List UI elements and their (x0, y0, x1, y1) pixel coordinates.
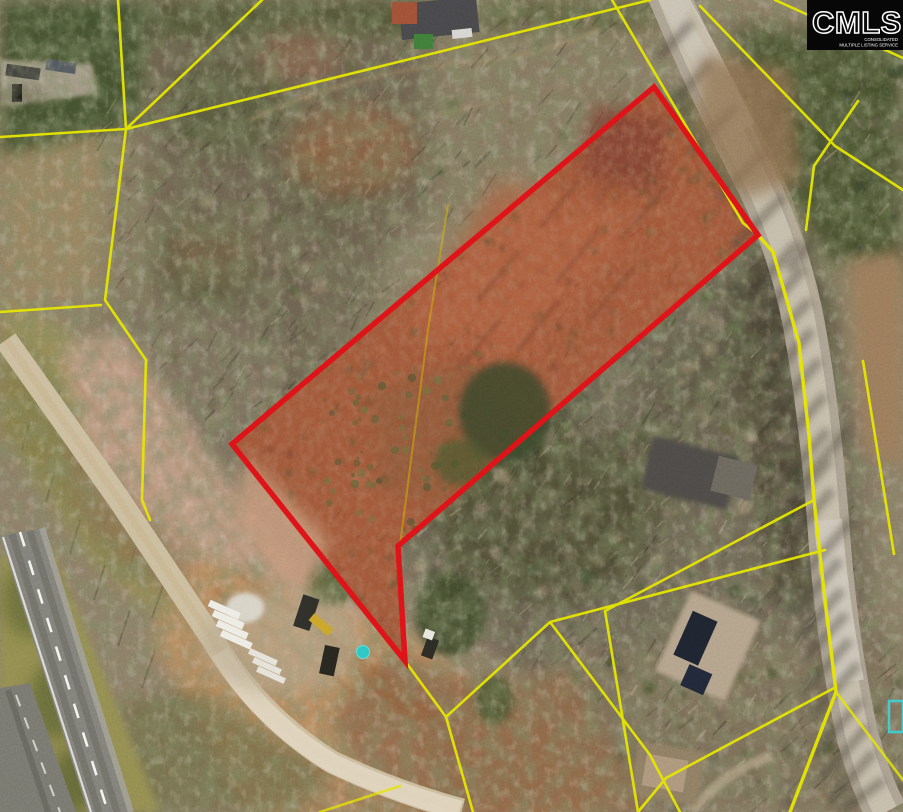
svg-text:CMLS: CMLS (812, 5, 902, 40)
svg-text:MULTIPLE LISTING SERVICE: MULTIPLE LISTING SERVICE (839, 43, 898, 48)
svg-text:CONSOLIDATED: CONSOLIDATED (864, 37, 898, 42)
